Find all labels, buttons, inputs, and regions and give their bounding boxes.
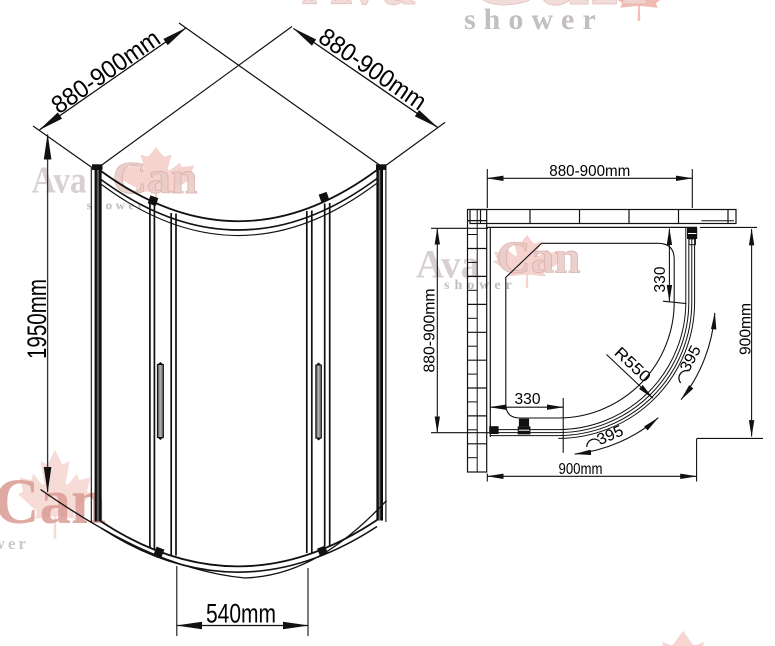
svg-text:shower: shower — [0, 534, 29, 553]
svg-text:880-900mm: 880-900mm — [549, 163, 630, 180]
svg-text:540mm: 540mm — [206, 599, 276, 629]
svg-text:330: 330 — [515, 391, 541, 408]
svg-text:1950mm: 1950mm — [22, 279, 52, 359]
svg-text:shower: shower — [464, 3, 604, 36]
svg-text:900mm: 900mm — [559, 461, 603, 478]
svg-text:900mm: 900mm — [738, 303, 755, 355]
svg-text:Can: Can — [0, 466, 106, 538]
svg-text:Ava: Ava — [302, 0, 416, 20]
svg-text:330: 330 — [652, 266, 669, 292]
svg-text:Ava: Ava — [32, 160, 87, 202]
svg-text:880-900mm: 880-900mm — [422, 289, 439, 373]
